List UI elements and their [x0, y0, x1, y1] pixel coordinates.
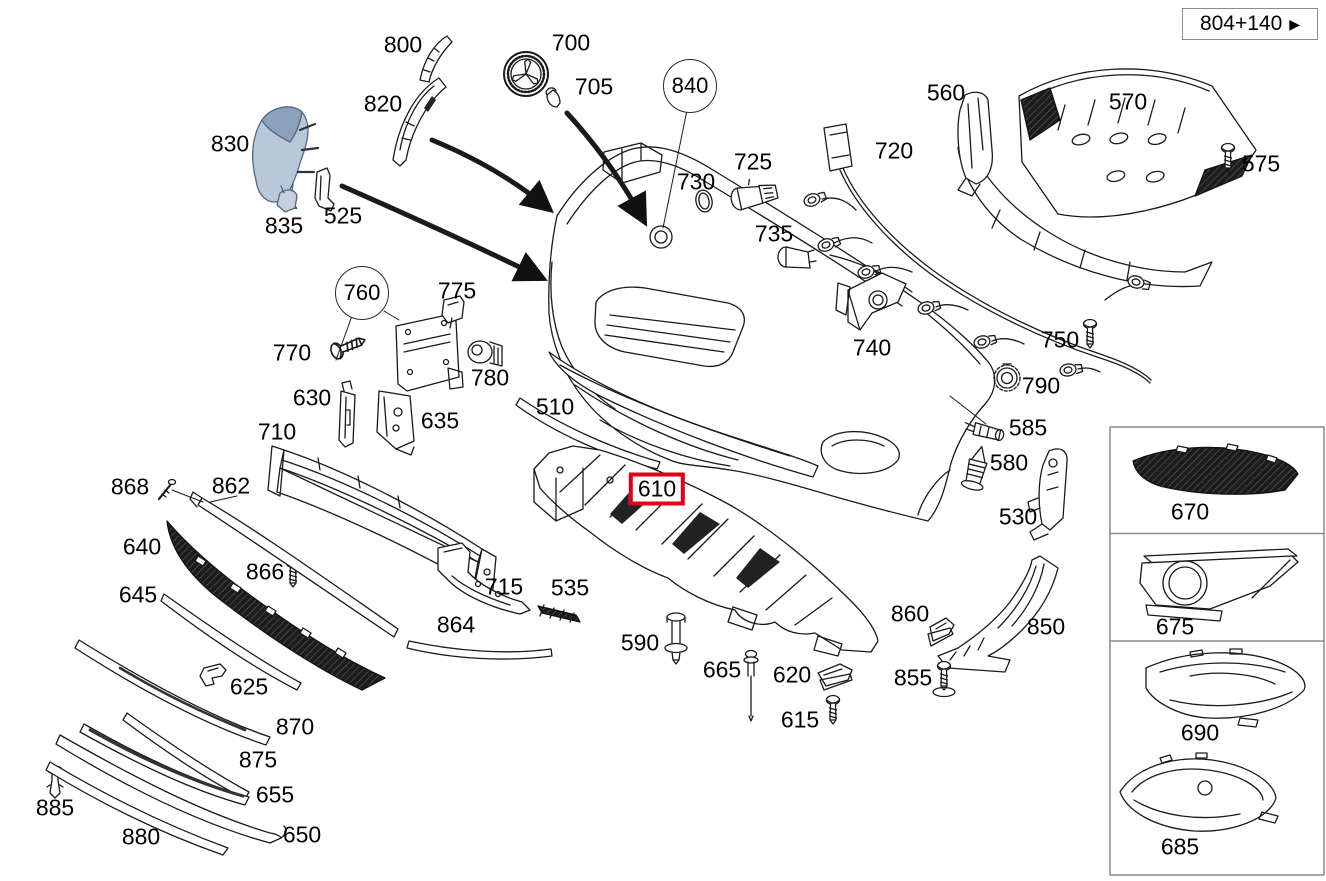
grommet-705-drawing	[545, 87, 560, 107]
part-label-770[interactable]: 770	[273, 342, 311, 365]
screw-615-drawing	[827, 696, 840, 725]
screw-750-drawing	[1084, 320, 1097, 349]
part-label-685[interactable]: 685	[1161, 836, 1199, 859]
clip-620-drawing	[818, 664, 852, 690]
part-label-705[interactable]: 705	[575, 76, 613, 99]
part-label-645[interactable]: 645	[119, 584, 157, 607]
part-label-630[interactable]: 630	[293, 387, 331, 410]
part-label-580[interactable]: 580	[990, 452, 1028, 475]
part-label-866[interactable]: 866	[246, 561, 284, 584]
part-label-665[interactable]: 665	[703, 659, 741, 682]
part-label-535[interactable]: 535	[551, 577, 589, 600]
part-label-800[interactable]: 800	[384, 34, 422, 57]
part-label-720[interactable]: 720	[875, 140, 913, 163]
part-label-670[interactable]: 670	[1171, 501, 1209, 524]
part-label-780[interactable]: 780	[471, 367, 509, 390]
bolt-590-drawing	[665, 613, 687, 664]
part-label-840[interactable]: 840	[663, 59, 717, 113]
part-label-575[interactable]: 575	[1242, 153, 1280, 176]
part-label-725[interactable]: 725	[734, 151, 772, 174]
part-label-615[interactable]: 615	[781, 709, 819, 732]
screw-855-drawing	[938, 662, 951, 691]
star-emblem-drawing	[504, 52, 548, 96]
part-label-525[interactable]: 525	[324, 205, 362, 228]
part-label-650[interactable]: 650	[283, 824, 321, 847]
part-label-860[interactable]: 860	[891, 603, 929, 626]
part-label-875[interactable]: 875	[239, 749, 277, 772]
bracket-630-drawing	[339, 381, 355, 447]
bracket-625-drawing	[200, 664, 226, 686]
ref-group-link[interactable]: 804+140 ▶	[1182, 8, 1318, 40]
part-label-740[interactable]: 740	[853, 337, 891, 360]
side-panel	[1110, 427, 1324, 875]
part-label-750[interactable]: 750	[1041, 329, 1079, 352]
part-label-855[interactable]: 855	[894, 667, 932, 690]
part-label-625[interactable]: 625	[230, 676, 268, 699]
screw-770-drawing	[329, 332, 368, 360]
sensor-holder-585-drawing	[963, 421, 1005, 442]
part-label-530[interactable]: 530	[999, 506, 1037, 529]
part-label-830[interactable]: 830	[211, 133, 249, 156]
rivet-665-drawing	[744, 651, 758, 722]
bracket-635-drawing	[377, 391, 414, 455]
part-label-835[interactable]: 835	[265, 215, 303, 238]
license-plate-bracket-drawing	[396, 315, 463, 391]
part-label-610[interactable]: 610	[629, 473, 685, 506]
blade-800-drawing	[420, 36, 452, 82]
part-label-710[interactable]: 710	[258, 421, 296, 444]
part-label-730[interactable]: 730	[677, 171, 715, 194]
part-label-760[interactable]: 760	[335, 266, 389, 320]
part-label-850[interactable]: 850	[1027, 616, 1065, 639]
part-label-655[interactable]: 655	[256, 784, 294, 807]
ref-arrow-icon: ▶	[1289, 17, 1300, 31]
part-label-864[interactable]: 864	[437, 614, 475, 637]
mesh-piece-535-drawing	[538, 605, 580, 622]
pin-868-drawing	[159, 480, 176, 500]
part-label-700[interactable]: 700	[552, 32, 590, 55]
part-label-590[interactable]: 590	[621, 632, 659, 655]
part-label-620[interactable]: 620	[773, 664, 811, 687]
nut-780-drawing	[468, 341, 502, 366]
ref-group-text: 804+140	[1200, 12, 1282, 36]
part-label-570[interactable]: 570	[1109, 91, 1147, 114]
washer-855-drawing	[933, 688, 955, 697]
plug-580-drawing	[961, 444, 993, 492]
part-label-715[interactable]: 715	[485, 576, 523, 599]
part-label-790[interactable]: 790	[1022, 375, 1060, 398]
part-label-640[interactable]: 640	[123, 536, 161, 559]
part-label-880[interactable]: 880	[122, 826, 160, 849]
part-label-510[interactable]: 510	[536, 396, 574, 419]
part-label-862[interactable]: 862	[212, 475, 250, 498]
part-label-868[interactable]: 868	[111, 476, 149, 499]
part-label-775[interactable]: 775	[438, 280, 476, 303]
part-label-820[interactable]: 820	[364, 93, 402, 116]
part-label-560[interactable]: 560	[927, 82, 965, 105]
part-label-635[interactable]: 635	[421, 410, 459, 433]
part-label-675[interactable]: 675	[1156, 616, 1194, 639]
part-label-870[interactable]: 870	[276, 716, 314, 739]
clip-860-drawing	[928, 618, 954, 646]
camera-ring-drawing	[994, 364, 1020, 391]
part-label-690[interactable]: 690	[1181, 722, 1219, 745]
part-label-885[interactable]: 885	[36, 797, 74, 820]
part-label-735[interactable]: 735	[755, 223, 793, 246]
part-label-585[interactable]: 585	[1009, 417, 1047, 440]
exploded-diagram-canvas	[0, 0, 1326, 881]
